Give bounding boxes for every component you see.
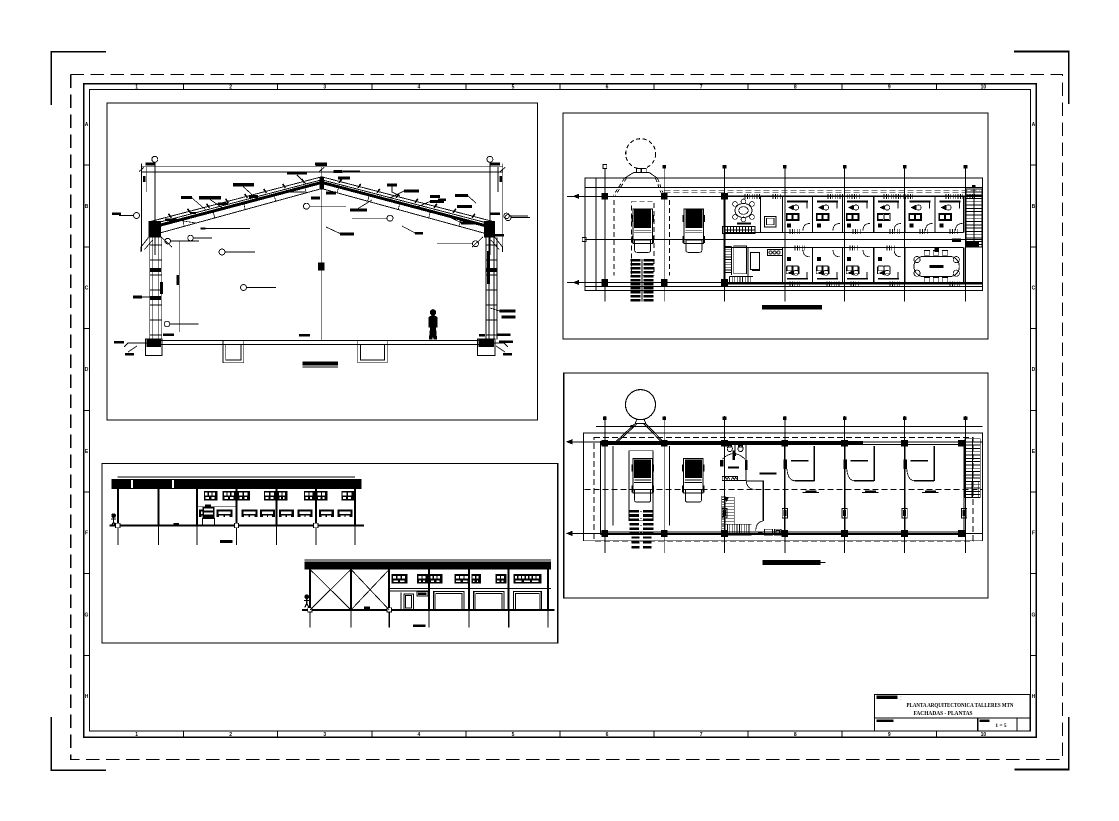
svg-text:2: 2 bbox=[229, 85, 232, 91]
svg-text:D: D bbox=[85, 367, 89, 373]
svg-text:1: 1 bbox=[135, 85, 138, 91]
svg-text:B: B bbox=[85, 204, 89, 210]
svg-text:H: H bbox=[1032, 694, 1036, 700]
svg-text:C: C bbox=[1032, 286, 1036, 292]
svg-text:F: F bbox=[85, 531, 88, 537]
svg-text:2: 2 bbox=[229, 732, 232, 738]
svg-text:D: D bbox=[1032, 367, 1036, 373]
svg-text:7: 7 bbox=[700, 85, 703, 91]
svg-text:4: 4 bbox=[417, 732, 420, 738]
svg-text:A: A bbox=[1032, 122, 1036, 128]
svg-text:9: 9 bbox=[888, 85, 891, 91]
svg-text:G: G bbox=[1031, 612, 1035, 618]
svg-text:6: 6 bbox=[606, 732, 609, 738]
svg-text:6: 6 bbox=[606, 85, 609, 91]
svg-text:10: 10 bbox=[981, 85, 987, 91]
svg-text:C: C bbox=[85, 286, 89, 292]
svg-text:8: 8 bbox=[794, 732, 797, 738]
svg-text:5: 5 bbox=[512, 732, 515, 738]
svg-text::: : bbox=[900, 696, 901, 702]
svg-text:A: A bbox=[85, 122, 89, 128]
svg-text:G: G bbox=[85, 612, 89, 618]
svg-text:3: 3 bbox=[323, 85, 326, 91]
svg-text:PLANTA ARQUITECTONICA TALLERES: PLANTA ARQUITECTONICA TALLERES MTN bbox=[907, 702, 1014, 709]
svg-text:1 = 5: 1 = 5 bbox=[995, 723, 1006, 729]
svg-text:10: 10 bbox=[981, 732, 987, 738]
svg-text:8: 8 bbox=[794, 85, 797, 91]
svg-text:5: 5 bbox=[512, 85, 515, 91]
svg-text:7: 7 bbox=[700, 732, 703, 738]
svg-text:F: F bbox=[1032, 531, 1035, 537]
svg-text:1: 1 bbox=[135, 732, 138, 738]
svg-text:H: H bbox=[85, 694, 89, 700]
svg-text:9: 9 bbox=[888, 732, 891, 738]
svg-text:B: B bbox=[1032, 204, 1036, 210]
svg-text:3: 3 bbox=[323, 732, 326, 738]
svg-text:FACHADAS - PLANTAS: FACHADAS - PLANTAS bbox=[914, 710, 973, 717]
svg-text:4: 4 bbox=[417, 85, 420, 91]
